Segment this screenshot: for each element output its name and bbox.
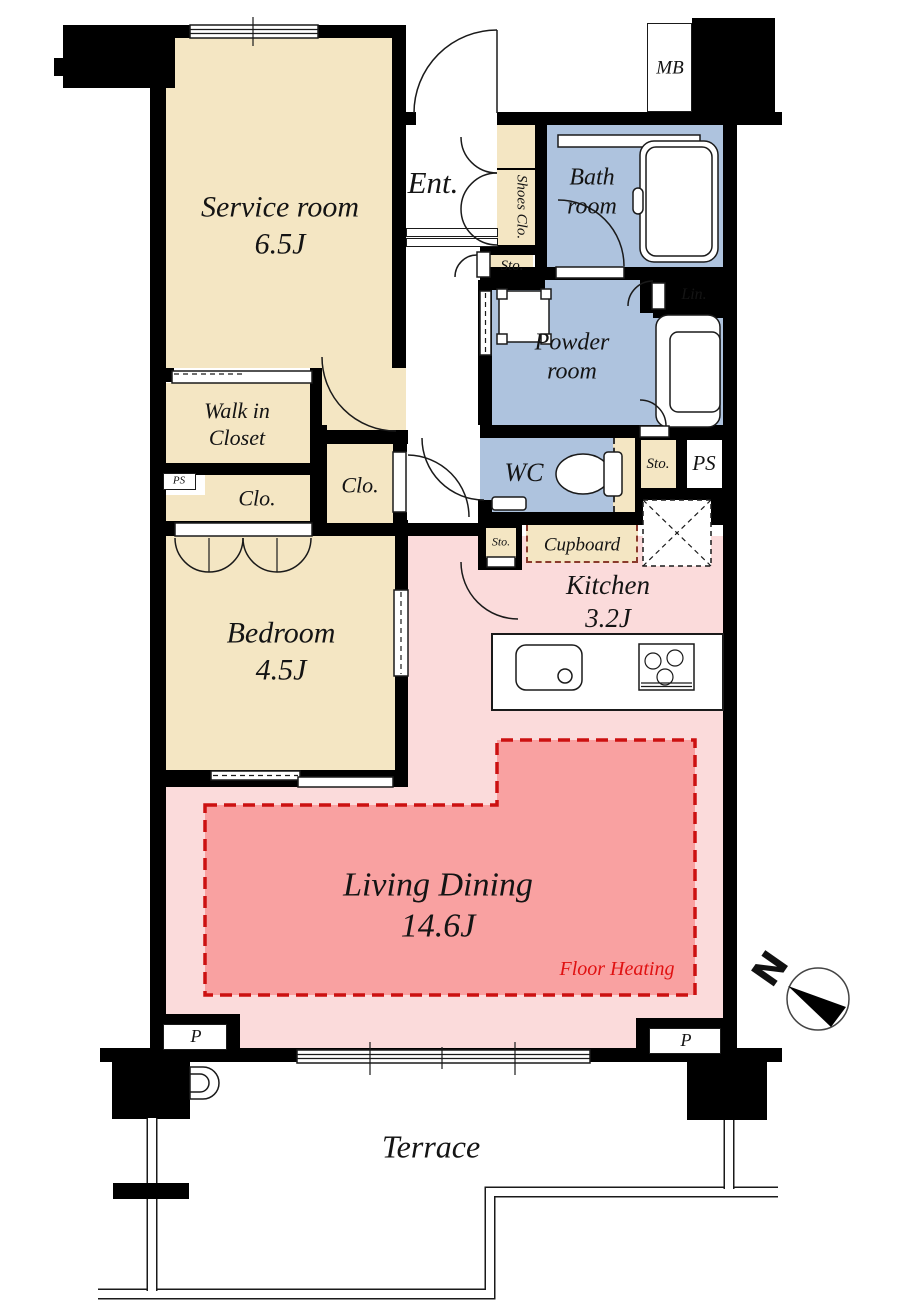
kitchen-sink bbox=[516, 645, 582, 690]
entrance-door bbox=[414, 30, 497, 113]
pipe-space-hall-label: PS bbox=[692, 451, 715, 477]
entrance-label: Ent. bbox=[408, 164, 459, 202]
refrigerator-space bbox=[643, 500, 711, 566]
closet-left-label: Clo. bbox=[238, 486, 275, 513]
powder-sliding-door bbox=[480, 291, 491, 355]
meter-box-label: MB bbox=[656, 56, 683, 79]
service-room-label: Service room 6.5J bbox=[201, 189, 359, 262]
fixtures-overlay: N bbox=[0, 0, 920, 1316]
terrace-faucet bbox=[190, 1067, 219, 1099]
kitchen-door bbox=[461, 557, 518, 619]
closet-hall-door bbox=[393, 452, 406, 512]
hall-doors bbox=[408, 438, 484, 517]
storage-kitchen-label: Sto. bbox=[492, 535, 510, 550]
terrace-label: Terrace bbox=[382, 1127, 480, 1166]
service-room-door bbox=[322, 357, 396, 431]
bedroom-bottom-sliding-door bbox=[211, 771, 393, 787]
wic-sliding-door bbox=[172, 371, 312, 383]
pillar-left-label: P bbox=[191, 1026, 202, 1048]
bedroom-closet-doors bbox=[175, 523, 312, 572]
bedroom-side-sliding-door bbox=[394, 590, 408, 676]
cupboard-label: Cupboard bbox=[544, 533, 620, 556]
floor-heating-label: Floor Heating bbox=[560, 957, 675, 981]
powder-room-label: Powder room bbox=[535, 329, 610, 388]
floor-plan: N Service room 6.5J Ent. Shoes Clo. Sto.… bbox=[0, 0, 920, 1316]
shoes-closet-doors bbox=[461, 137, 497, 245]
closet-hall-label: Clo. bbox=[341, 473, 378, 500]
wc-label: WC bbox=[505, 457, 544, 489]
walk-in-closet-label: Walk in Closet bbox=[204, 398, 270, 452]
washer-pan bbox=[656, 315, 720, 427]
kitchen-label: Kitchen 3.2J bbox=[566, 569, 650, 635]
bedroom-label: Bedroom 4.5J bbox=[227, 615, 336, 688]
toilet bbox=[556, 452, 622, 496]
pipe-space-left-label: PS bbox=[173, 474, 185, 487]
storage-entrance-door bbox=[455, 252, 490, 277]
linen-label: Lin. bbox=[681, 285, 706, 305]
shoes-closet-label: Shoes Clo. bbox=[513, 175, 530, 239]
storage-entrance-label: Sto. bbox=[501, 257, 524, 275]
living-window bbox=[297, 1042, 590, 1075]
service-window bbox=[190, 17, 318, 46]
storage-hall-label: Sto. bbox=[647, 455, 670, 473]
compass: N bbox=[743, 943, 849, 1030]
bathroom-label: Bath room bbox=[567, 164, 617, 223]
kitchen-stove bbox=[639, 644, 694, 690]
wc-step bbox=[492, 497, 526, 510]
living-dining-label: Living Dining 14.6J bbox=[343, 865, 533, 948]
pillar-right-label: P bbox=[681, 1030, 692, 1052]
linen-door bbox=[628, 281, 665, 309]
